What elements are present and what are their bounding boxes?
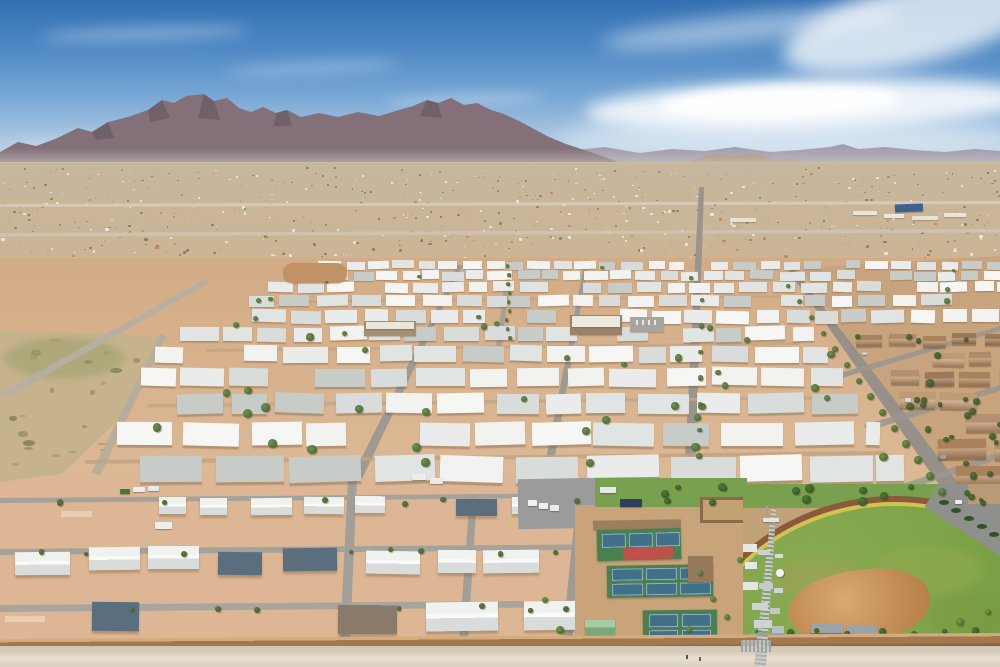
green-truck	[120, 489, 130, 494]
antenna-panel	[775, 554, 783, 558]
antenna-array	[763, 518, 779, 522]
antenna-panel	[752, 603, 768, 610]
white-rv	[430, 478, 443, 484]
white-truck	[539, 503, 548, 509]
perimeter-dirt-road	[0, 646, 1000, 667]
car	[955, 500, 962, 504]
tower-base	[741, 640, 771, 652]
white-rv	[148, 486, 159, 491]
antenna-panel	[770, 608, 780, 614]
cell-tower	[725, 508, 805, 667]
white-rv	[412, 474, 426, 480]
white-truck	[550, 505, 559, 511]
white-truck	[528, 500, 537, 506]
antenna-panel	[758, 550, 770, 555]
car	[905, 398, 911, 402]
microwave-dish	[776, 569, 784, 577]
vehicles	[0, 0, 1000, 667]
car	[862, 352, 867, 355]
antenna-panel	[774, 588, 783, 593]
pedestrian	[699, 657, 701, 661]
antenna-panel	[759, 583, 773, 589]
antenna-panel	[754, 620, 772, 628]
white-truck	[600, 487, 616, 493]
antenna-panel	[772, 626, 784, 633]
car	[940, 455, 946, 459]
pedestrian	[686, 655, 688, 659]
aerial-photograph: Aerial view of a desert mobile home park…	[0, 0, 1000, 667]
motorhome	[155, 522, 172, 529]
tower-crossarm	[751, 633, 785, 635]
blue-semi-trailer	[620, 499, 642, 507]
white-rv	[133, 487, 145, 492]
tower-tip	[766, 506, 768, 516]
